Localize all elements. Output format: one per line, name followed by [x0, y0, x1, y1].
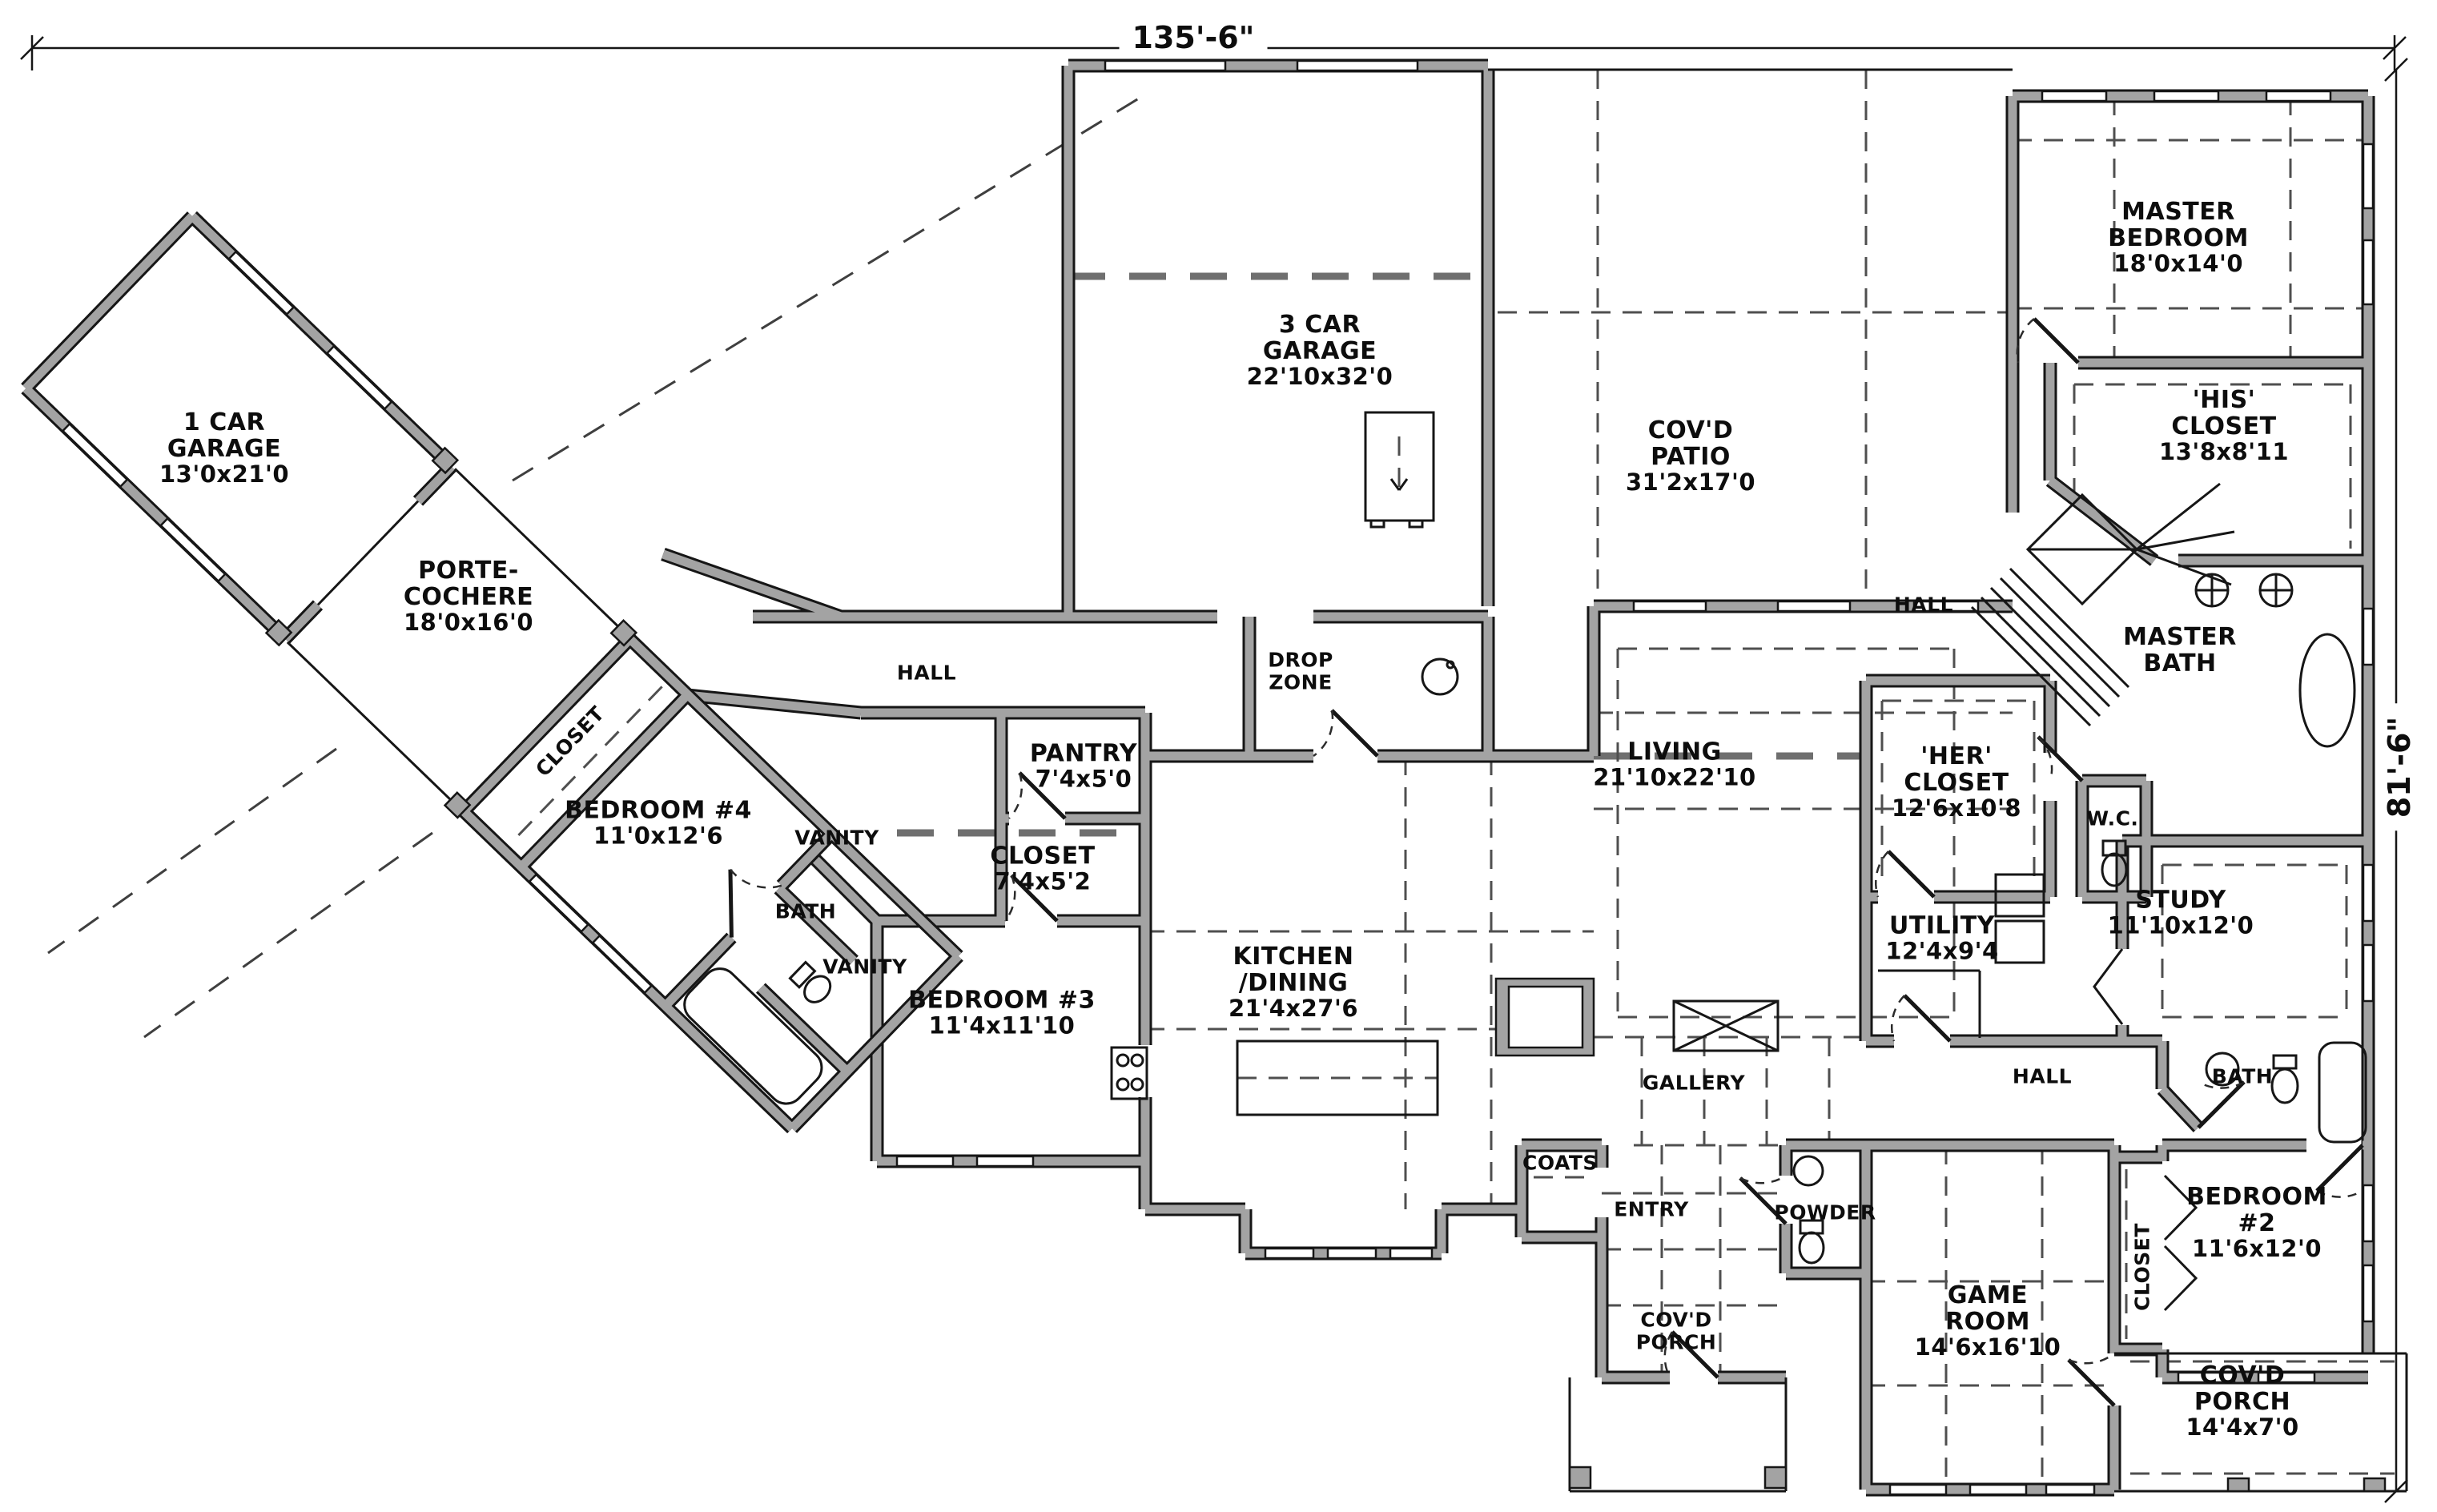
room-label-entry: ENTRY	[1614, 1198, 1689, 1220]
overall-height-dimension: 81'-6"	[2382, 704, 2417, 831]
room-label-game-room: GAME ROOM14'6x16'10	[1915, 1282, 2061, 1361]
refrigerator	[1496, 979, 1594, 1056]
room-label-3-car-garage: 3 CAR GARAGE22'10x32'0	[1247, 312, 1393, 390]
room-label-hall-master: HALL	[1894, 593, 1953, 616]
room-label-powder: POWDER	[1774, 1201, 1876, 1224]
overall-width-dimension: 135'-6"	[1120, 20, 1268, 55]
room-label-vanity-1: VANITY	[794, 826, 879, 849]
ceiling-dashed-lines	[1145, 70, 2395, 1490]
room-label-master-bath: MASTER BATH	[2123, 624, 2237, 677]
room-label-closet-hall: CLOSET7'4x5'2	[990, 843, 1095, 895]
room-label-drop-zone: DROP ZONE	[1268, 649, 1333, 694]
room-label-covd-porch-se: COV'D PORCH14'4x7'0	[2186, 1362, 2298, 1441]
room-label-her-closet: 'HER' CLOSET12'6x10'8	[1892, 743, 2021, 822]
room-label-porte-cochere: PORTE- COCHERE18'0x16'0	[404, 557, 533, 636]
roof-break-lines	[897, 276, 1866, 1037]
mud-sink	[1422, 659, 1458, 694]
room-label-covd-patio: COV'D PATIO31'2x17'0	[1626, 417, 1755, 496]
room-label-1-car-garage: 1 CAR GARAGE13'0x21'0	[159, 409, 289, 488]
room-label-utility: UTILITY12'4x9'4	[1885, 913, 1998, 965]
room-label-bedroom-3: BEDROOM #311'4x11'10	[908, 987, 1096, 1039]
room-label-kitchen-dining: KITCHEN /DINING21'4x27'6	[1229, 943, 1358, 1022]
floor-plan-drawing	[0, 0, 2437, 1512]
room-label-hall-east: HALL	[2013, 1065, 2072, 1088]
room-label-bedroom-4: BEDROOM #411'0x12'6	[565, 798, 752, 850]
room-label-closet-bed2: CLOSET	[2131, 1223, 2153, 1311]
floor-plan-sheet: 135'-6" 81'-6" 1 CAR GARAGE13'0x21'0 POR…	[0, 0, 2437, 1512]
room-label-bath-west: BATH	[775, 900, 836, 923]
cooktop	[1112, 1048, 1147, 1099]
angled-wing	[20, 210, 965, 1135]
room-label-bath-east: BATH	[2212, 1065, 2273, 1088]
room-label-bedroom-2: BEDROOM #211'6x12'0	[2167, 1184, 2347, 1262]
room-label-hall-west: HALL	[897, 661, 956, 684]
room-label-coats: COATS	[1522, 1152, 1598, 1174]
east-bath-fixtures	[2206, 1043, 2366, 1142]
study-double-door	[2094, 949, 2122, 1024]
room-label-living: LIVING21'10x22'10	[1593, 739, 1755, 791]
room-label-vanity-2: VANITY	[822, 955, 907, 978]
room-label-gallery: GALLERY	[1643, 1072, 1745, 1094]
room-label-master-bedroom: MASTER BEDROOM18'0x14'0	[2108, 199, 2249, 277]
room-label-his-closet: 'HIS' CLOSET13'8x8'11	[2159, 387, 2289, 465]
room-label-pantry: PANTRY7'4x5'0	[1030, 741, 1137, 793]
fireplace	[1674, 1001, 1778, 1051]
room-label-study: STUDY11'10x12'0	[2108, 887, 2254, 939]
walls	[663, 66, 2368, 1490]
room-label-wc: W.C.	[2087, 807, 2139, 830]
room-label-covd-porch-entry: COV'D PORCH	[1636, 1309, 1717, 1353]
